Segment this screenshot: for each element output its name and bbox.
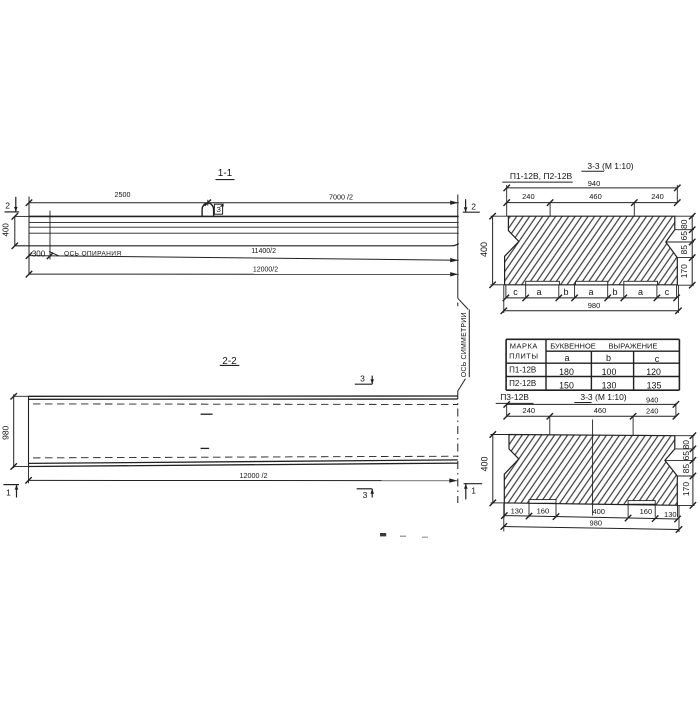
svg-text:П3-12В: П3-12В [500, 392, 529, 402]
svg-text:11400/2: 11400/2 [251, 248, 276, 255]
svg-text:3-3 (М 1:10): 3-3 (М 1:10) [587, 161, 633, 171]
svg-text:b: b [612, 287, 617, 297]
svg-text:МАРКА: МАРКА [510, 342, 538, 351]
svg-text:940: 940 [646, 395, 659, 404]
svg-text:П1-12В: П1-12В [509, 366, 536, 375]
svg-text:130: 130 [664, 510, 677, 519]
svg-text:980: 980 [1, 425, 11, 439]
svg-text:150: 150 [559, 380, 574, 390]
svg-text:b: b [563, 287, 568, 297]
svg-text:980: 980 [588, 301, 601, 310]
svg-text:65: 65 [681, 451, 691, 461]
svg-text:БУКВЕННОЕ: БУКВЕННОЕ [550, 341, 596, 350]
svg-text:400: 400 [479, 242, 489, 257]
svg-text:1-1: 1-1 [218, 168, 233, 179]
svg-text:460: 460 [589, 192, 602, 201]
svg-text:130: 130 [602, 380, 617, 390]
svg-text:300: 300 [32, 249, 46, 258]
svg-text:3: 3 [360, 374, 365, 384]
svg-text:c: c [513, 287, 518, 297]
svg-text:b: b [606, 353, 611, 363]
svg-text:a: a [638, 287, 643, 297]
svg-text:170: 170 [681, 482, 691, 496]
svg-text:c: c [665, 287, 670, 297]
svg-text:160: 160 [640, 507, 653, 516]
svg-text:240: 240 [522, 192, 535, 201]
svg-text:100: 100 [602, 367, 617, 377]
svg-text:160: 160 [537, 507, 550, 516]
svg-text:135: 135 [647, 380, 662, 390]
svg-text:П1-12В, П2-12В: П1-12В, П2-12В [510, 171, 573, 181]
svg-text:400: 400 [592, 507, 605, 516]
svg-text:3: 3 [363, 490, 368, 500]
svg-text:2500: 2500 [115, 190, 131, 199]
svg-text:85: 85 [681, 464, 691, 474]
svg-text:ПЛИТЫ: ПЛИТЫ [509, 352, 538, 361]
svg-text:a: a [564, 353, 569, 363]
svg-text:460: 460 [594, 406, 607, 415]
svg-text:a: a [588, 287, 593, 297]
svg-text:180: 180 [559, 367, 574, 377]
svg-text:П2-12В: П2-12В [509, 379, 536, 388]
svg-text:12000/2: 12000/2 [253, 266, 278, 273]
svg-text:1: 1 [471, 485, 476, 495]
svg-text:1: 1 [6, 487, 11, 497]
svg-text:85: 85 [679, 245, 689, 255]
svg-text:400: 400 [480, 456, 490, 471]
svg-text:240: 240 [651, 192, 664, 201]
svg-text:400: 400 [2, 223, 11, 237]
svg-text:240: 240 [646, 407, 659, 416]
svg-text:ОСЬ ОПИРАНИЯ: ОСЬ ОПИРАНИЯ [64, 250, 121, 257]
svg-text:7000 /2: 7000 /2 [329, 192, 353, 201]
svg-text:2: 2 [471, 202, 476, 212]
svg-text:130: 130 [511, 507, 524, 516]
svg-text:ВЫРАЖЕНИЕ: ВЫРАЖЕНИЕ [609, 341, 658, 350]
svg-text:ОСЬ СИММЕТРИИ: ОСЬ СИММЕТРИИ [461, 312, 468, 377]
svg-text:2: 2 [5, 201, 10, 211]
svg-text:12000 /2: 12000 /2 [240, 471, 268, 480]
svg-text:a: a [536, 287, 541, 297]
svg-text:80: 80 [681, 440, 691, 450]
svg-text:940: 940 [588, 179, 601, 188]
svg-text:240: 240 [523, 406, 536, 415]
svg-text:c: c [655, 354, 660, 364]
svg-text:3-3 (М 1:10): 3-3 (М 1:10) [580, 392, 626, 402]
svg-text:170: 170 [679, 264, 689, 278]
svg-text:120: 120 [646, 367, 661, 377]
svg-text:65: 65 [679, 231, 689, 241]
svg-text:980: 980 [590, 519, 603, 528]
svg-text:80: 80 [679, 219, 689, 229]
